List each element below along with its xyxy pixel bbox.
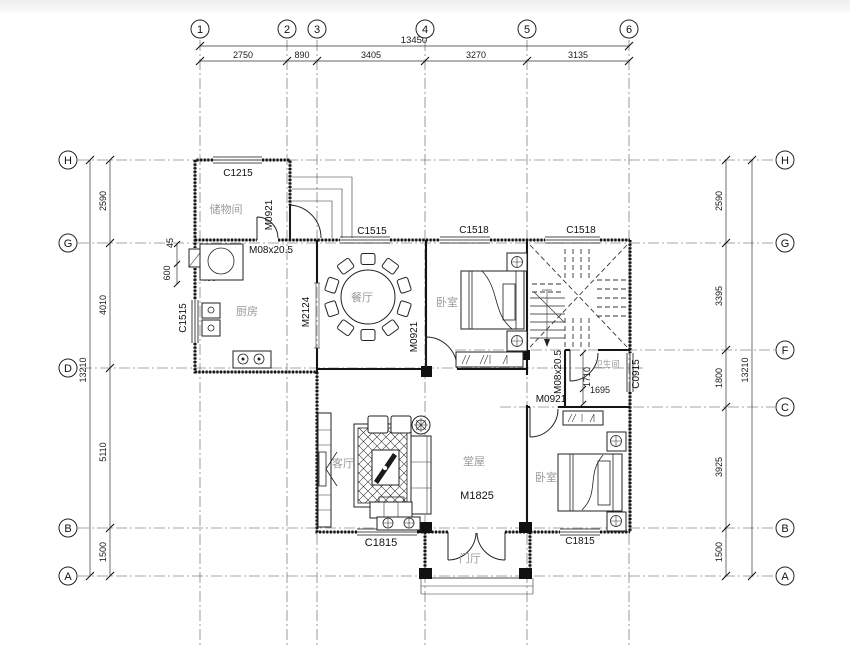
door-m0921-storage xyxy=(290,205,321,238)
axis-left-G: G xyxy=(59,234,77,252)
axis-right-C: C xyxy=(776,398,794,416)
window-c1215 xyxy=(213,157,262,163)
tag-m0921-storage: M0921 xyxy=(264,199,275,230)
room-bedroom1: 卧室 xyxy=(436,295,458,309)
dim-top-3: 3405 xyxy=(361,50,381,60)
dining-chair xyxy=(381,258,399,275)
axis-label-left-D: D xyxy=(64,363,72,375)
bed2 xyxy=(558,454,622,511)
room-hall: 堂屋 xyxy=(463,455,485,468)
plant-side-table xyxy=(412,416,430,434)
axis-right-B: B xyxy=(776,519,794,537)
dim-left-total: 13210 xyxy=(78,357,88,382)
axis-right-A: A xyxy=(776,567,794,585)
tag-c1815-living: C1815 xyxy=(365,537,397,549)
dim-top-1: 2750 xyxy=(233,50,253,60)
dim-left-4: 1500 xyxy=(98,542,108,562)
dining-chair xyxy=(397,277,412,294)
axis-label-right-G: G xyxy=(781,238,790,250)
axis-label-5: 5 xyxy=(524,24,530,36)
tag-c1815-bed2: C1815 xyxy=(565,536,595,547)
axis-label-left-B: B xyxy=(64,523,71,535)
axis-top-3: 3 xyxy=(308,20,326,38)
tag-m0921-bed2: M0921 xyxy=(536,394,567,405)
axis-label-4: 4 xyxy=(422,24,428,36)
axis-left-H: H xyxy=(59,151,77,169)
axis-label-left-A: A xyxy=(64,571,72,583)
room-bath: 卫生间 xyxy=(594,359,620,369)
tag-c0915: C0915 xyxy=(631,359,642,389)
axis-label-right-F: F xyxy=(782,345,789,357)
axis-label-left-G: G xyxy=(64,238,73,250)
window-c1815-bed2 xyxy=(560,529,600,535)
dim-right-1: 2590 xyxy=(714,191,724,211)
tag-m2124: M2124 xyxy=(301,296,312,327)
axis-label-right-H: H xyxy=(781,155,789,167)
sofa-right xyxy=(411,436,431,514)
room-storage: 储物间 xyxy=(210,202,243,216)
stair-void-cross xyxy=(530,245,627,347)
dining-chair xyxy=(381,319,399,336)
axis-label-right-A: A xyxy=(781,571,789,583)
axis-left-D: D xyxy=(59,359,77,377)
tag-c1518-a: C1518 xyxy=(459,225,489,236)
tv-cabinet xyxy=(318,413,337,527)
axis-top-6: 6 xyxy=(620,20,638,38)
tag-m0921-dining: M0921 xyxy=(409,321,420,352)
dim-left-3: 5110 xyxy=(98,442,108,461)
window-c1518-b xyxy=(545,237,600,243)
kitchen-cooktop xyxy=(233,351,271,368)
dining-chair xyxy=(337,319,355,336)
room-dining: 餐厅 xyxy=(351,290,373,304)
axis-label-1: 1 xyxy=(197,24,203,36)
axis-right-F: F xyxy=(776,341,794,359)
axis-top-2: 2 xyxy=(278,20,296,38)
dining-chair xyxy=(324,277,339,294)
bed1 xyxy=(461,271,524,329)
dining-chair xyxy=(361,330,375,341)
tag-m08-kitchen: M08x20.5 xyxy=(249,245,293,256)
room-foyer: 门厅 xyxy=(459,551,481,565)
armchair-2 xyxy=(391,416,411,433)
axis-right-G: G xyxy=(776,234,794,252)
axis-top-4: 4 xyxy=(416,20,434,38)
dim-right-3: 1800 xyxy=(714,368,724,388)
dining-chair xyxy=(324,300,339,317)
dim-right-2: 3395 xyxy=(714,286,724,306)
floor-plan-drawing: 13450 2750 890 3405 3270 3135 13210 2590… xyxy=(0,0,850,659)
tag-m08-bath: M08x20.5 xyxy=(553,350,564,394)
kitchen-sink xyxy=(200,244,243,280)
dim-left-1: 2590 xyxy=(98,191,108,211)
tag-c1515-left: C1515 xyxy=(178,303,189,333)
dim-600: 600 xyxy=(162,265,172,280)
room-kitchen: 厨房 xyxy=(236,305,258,318)
dim-top-5: 3135 xyxy=(568,50,588,60)
floorplan-page: { "axes": { "top": ["1","2","3","4","5",… xyxy=(0,0,850,659)
axis-label-2: 2 xyxy=(284,24,290,36)
tag-c1215: C1215 xyxy=(223,168,253,179)
tag-m1825: M1825 xyxy=(460,490,494,502)
bed2-dresser xyxy=(563,411,603,425)
axis-label-left-H: H xyxy=(64,155,72,167)
tag-c1518-b: C1518 xyxy=(566,225,596,236)
dining-chair xyxy=(361,254,375,265)
axis-label-3: 3 xyxy=(314,24,320,36)
dim-top-2: 890 xyxy=(294,50,309,60)
axis-left-B: B xyxy=(59,519,77,537)
dim-left-2: 4010 xyxy=(98,295,108,315)
axis-label-6: 6 xyxy=(626,24,632,36)
bed1-nightstand-bottom xyxy=(507,331,527,351)
axis-left-A: A xyxy=(59,567,77,585)
dim-45: 45 xyxy=(165,238,175,248)
dim-top-4: 3270 xyxy=(466,50,486,60)
axis-top-5: 5 xyxy=(518,20,536,38)
coffee-table xyxy=(372,450,399,485)
stair-direction-arrow xyxy=(542,290,552,347)
door-m0921-dining xyxy=(426,337,457,369)
kitchen-side-units xyxy=(202,303,220,336)
dim-1695: 1695 xyxy=(590,385,610,395)
axis-label-right-B: B xyxy=(781,523,788,535)
armchair-1 xyxy=(368,416,388,433)
bed1-nightstand-top xyxy=(507,253,527,271)
bed2-nightstand-bottom xyxy=(607,512,626,531)
window-c1518-a xyxy=(440,237,490,243)
entry-bench xyxy=(377,517,420,530)
stair-break-line xyxy=(534,292,564,322)
room-living: 客厅 xyxy=(332,456,354,470)
room-bedroom2: 卧室 xyxy=(535,470,557,484)
dining-chair xyxy=(337,258,355,275)
dim-right-5: 1500 xyxy=(714,542,724,562)
dim-1710: 1710 xyxy=(582,367,592,387)
dim-right-4: 3925 xyxy=(714,457,724,477)
axis-top-1: 1 xyxy=(191,20,209,38)
dining-chair xyxy=(397,300,412,317)
window-c1515-top xyxy=(340,237,390,243)
bed1-dresser xyxy=(456,352,523,367)
axis-label-right-C: C xyxy=(781,402,789,414)
dim-right-total: 13210 xyxy=(740,357,750,382)
staircase xyxy=(530,245,628,347)
bed2-nightstand-top xyxy=(607,432,626,451)
tag-c1515-top: C1515 xyxy=(357,226,387,237)
door-m0921-bed2 xyxy=(530,407,558,437)
window-c1515-left xyxy=(192,300,198,343)
axis-right-H: H xyxy=(776,151,794,169)
